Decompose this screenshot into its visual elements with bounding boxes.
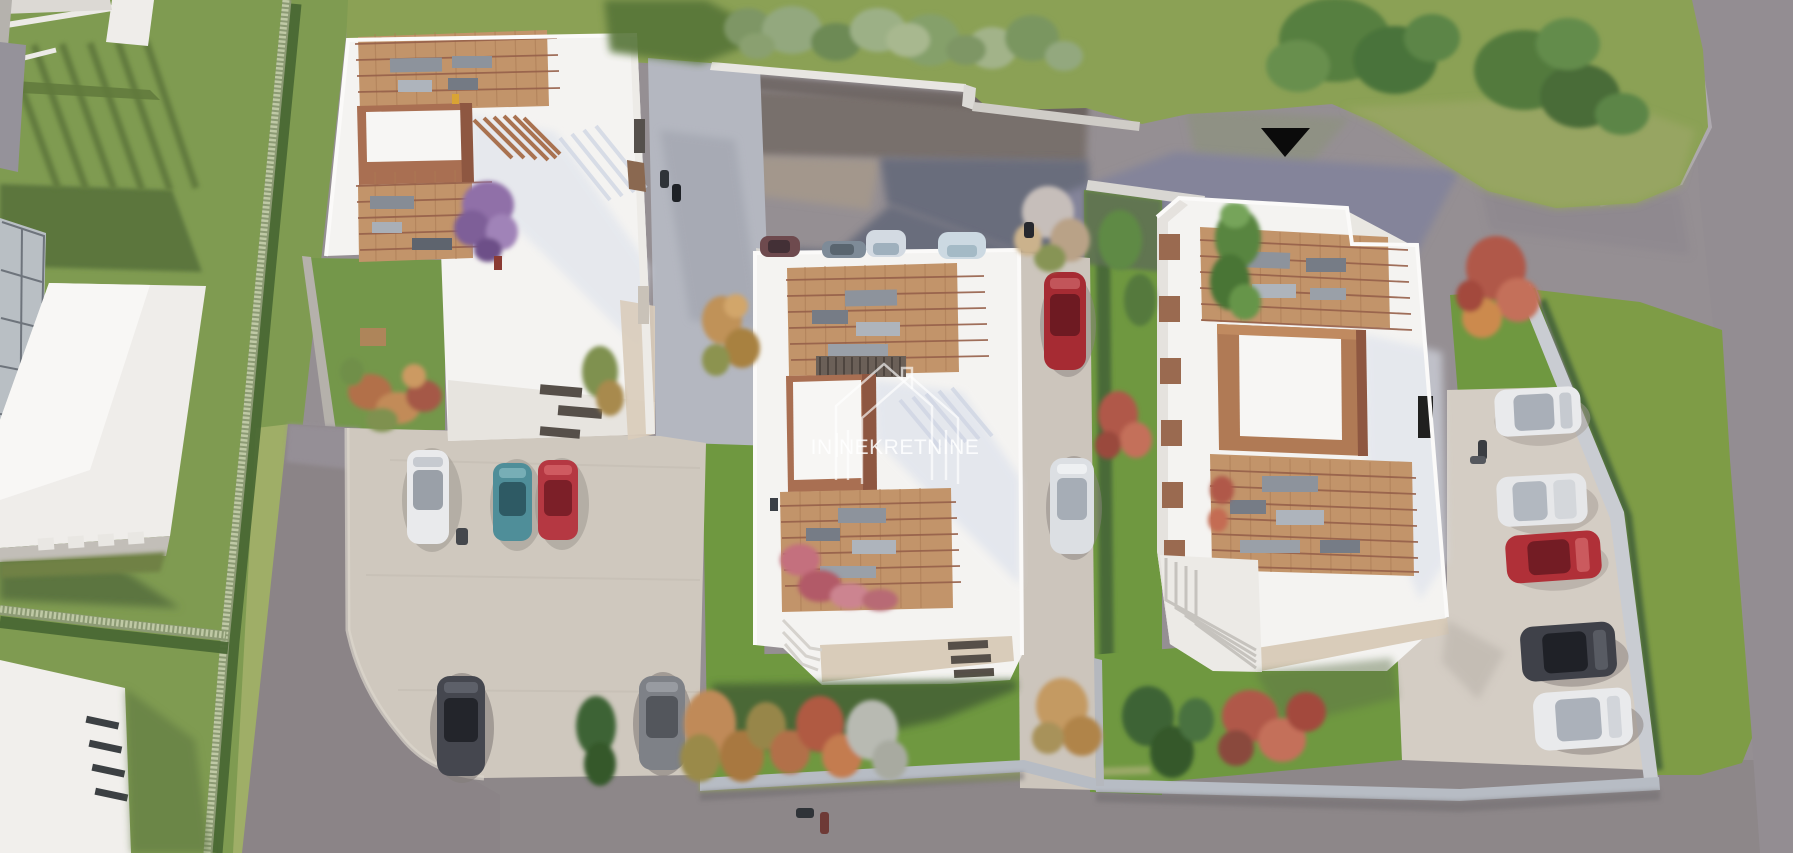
svg-text:IN NEKRETNINE: IN NEKRETNINE	[811, 436, 980, 459]
